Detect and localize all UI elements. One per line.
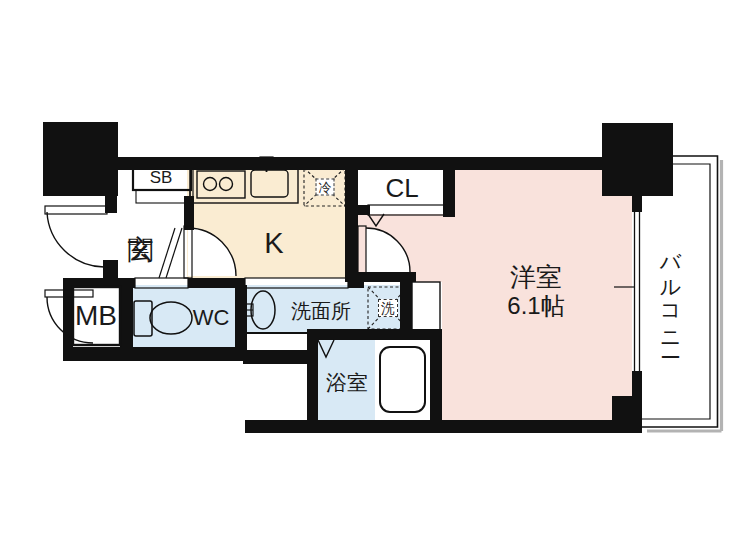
shoe-box-label: SB	[150, 169, 173, 186]
closet-front	[368, 205, 445, 215]
laundry-label: 洗	[378, 299, 398, 317]
bathroom-label: 浴室	[326, 372, 368, 393]
closet-label: CL	[385, 175, 418, 201]
floor-plan: SB 玄関 K 冷 CL MB WC 洗面所 洗 浴室 洋室 6.1帖 バルコニ…	[0, 0, 750, 550]
washroom-label: 洗面所	[291, 301, 351, 321]
entrance-door-arc-icon	[45, 206, 107, 267]
refrigerator-label: 冷	[316, 179, 335, 196]
toilet-label: WC	[193, 307, 230, 329]
kitchen-label: K	[264, 229, 283, 258]
column-top-left	[43, 122, 118, 196]
shoe-box-lower	[136, 190, 190, 203]
floor-plan-drawing	[0, 0, 750, 550]
balcony-label: バルコニー	[661, 238, 682, 349]
entrance-step-icon	[159, 228, 182, 278]
duct-niche	[412, 282, 440, 334]
main-room-label: 洋室	[510, 264, 562, 290]
column-top-right	[602, 123, 673, 196]
main-room-size: 6.1帖	[507, 294, 564, 318]
meter-box-label: MB	[75, 302, 117, 330]
entrance-label: 玄関	[128, 214, 154, 222]
